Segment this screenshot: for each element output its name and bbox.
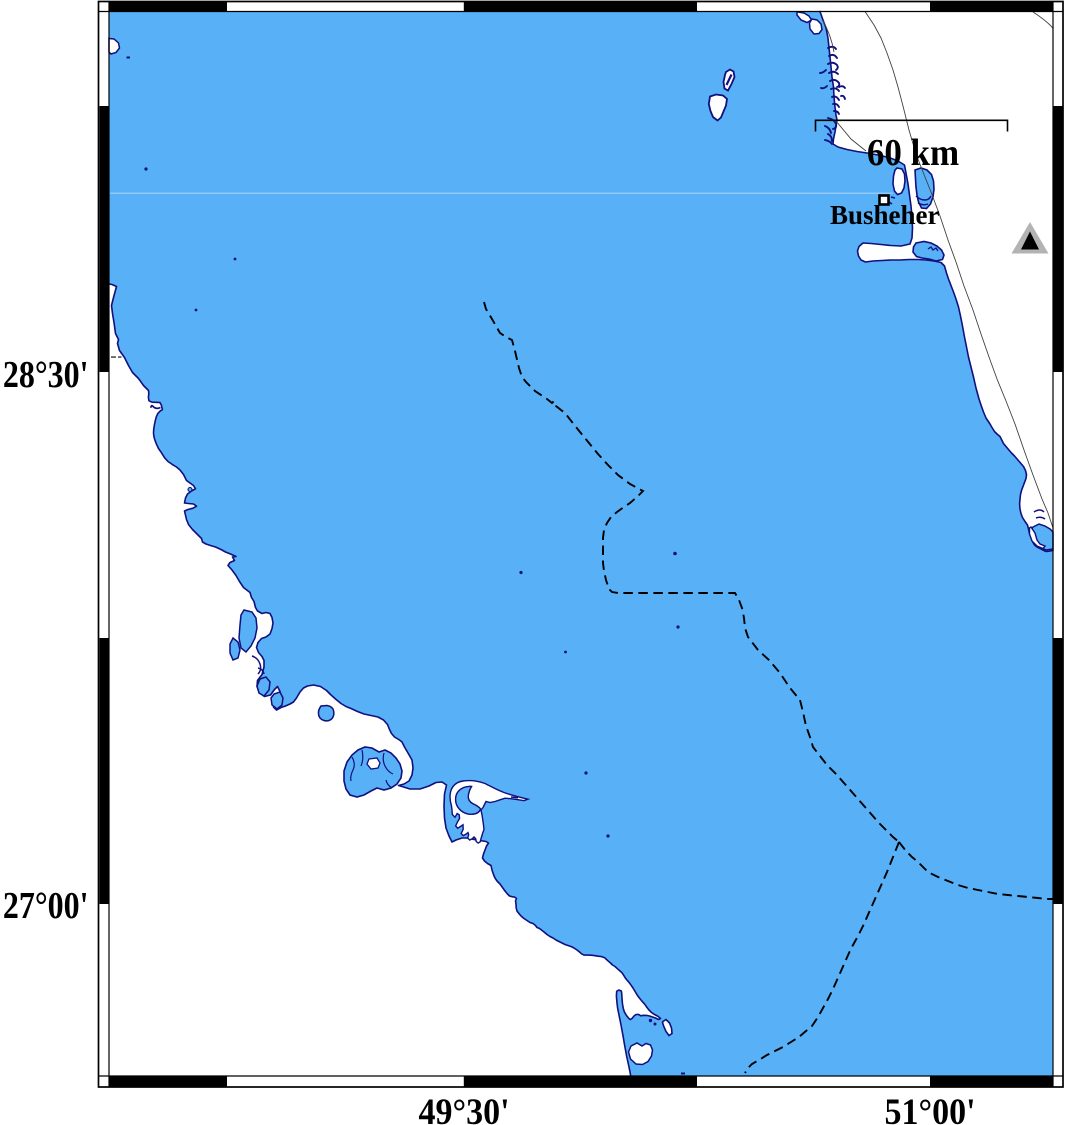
svg-text:27°00': 27°00' [3, 884, 89, 926]
svg-text:28°30': 28°30' [3, 353, 89, 395]
svg-text:51°00': 51°00' [884, 1091, 975, 1125]
svg-text:49°30': 49°30' [418, 1091, 509, 1125]
svg-text:60 km: 60 km [867, 132, 959, 174]
svg-text:Busheher: Busheher [830, 200, 940, 230]
